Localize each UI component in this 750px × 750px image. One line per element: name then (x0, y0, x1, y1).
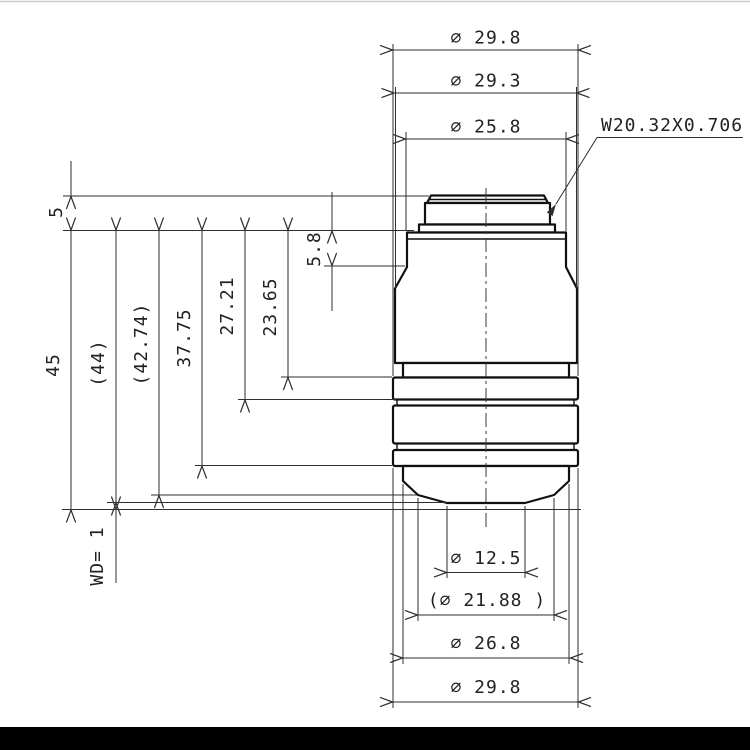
dim-label-44: (44) (88, 339, 109, 386)
dim-label-dia-29-8-top: ∅ 29.8 (450, 28, 521, 49)
thread-callout-label: W20.32X0.706 (601, 115, 743, 136)
dim-label-5-8: 5.8 (304, 231, 325, 267)
dim-label-dia-29-8-bottom: ∅ 29.8 (450, 677, 521, 698)
dim-label-parfocal: 45 (43, 353, 64, 377)
dim-label-23-65: 23.65 (260, 277, 281, 336)
dim-label-dia-26-8: ∅ 26.8 (450, 633, 521, 654)
objective-lens-drawing: ∅ 29.8 ∅ 29.3 ∅ 25.8 W20.32X0.706 5 45 (… (0, 0, 750, 750)
dim-label-working-distance: WD= 1 (87, 526, 108, 585)
dim-label-dia-25-8: ∅ 25.8 (450, 117, 521, 138)
drawing-canvas: ∅ 29.8 ∅ 29.3 ∅ 25.8 W20.32X0.706 5 45 (… (0, 0, 750, 750)
thread-leader (556, 138, 743, 205)
dim-label-37-75: 37.75 (174, 308, 195, 367)
dim-label-42-74: (42.74) (131, 303, 152, 386)
thread-step-ring (419, 225, 555, 233)
dim-label-dia-21-88: (∅ 21.88 ) (428, 590, 546, 611)
dim-label-27-21: 27.21 (217, 276, 238, 335)
dim-label-thread-length: 5 (46, 206, 67, 218)
dim-label-dia-12-5: ∅ 12.5 (450, 548, 521, 569)
bottom-bar (0, 727, 750, 750)
dim-label-dia-29-3: ∅ 29.3 (450, 71, 521, 92)
thread-section (425, 203, 550, 225)
